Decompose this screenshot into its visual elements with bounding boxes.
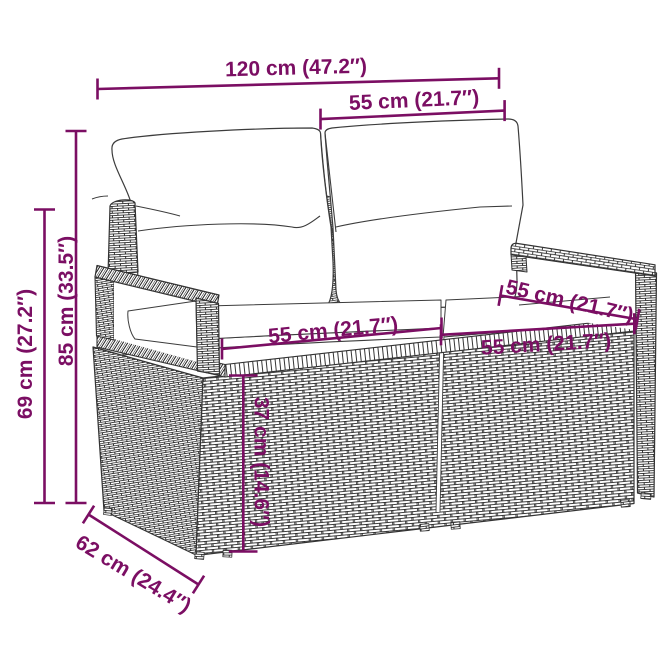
svg-text:85 cm (33.5″): 85 cm (33.5″) [55,236,78,366]
svg-text:120 cm (47.2″): 120 cm (47.2″) [225,55,368,82]
svg-text:37 cm (14.6″): 37 cm (14.6″) [250,397,273,527]
svg-text:69 cm (27.2″): 69 cm (27.2″) [14,289,37,419]
